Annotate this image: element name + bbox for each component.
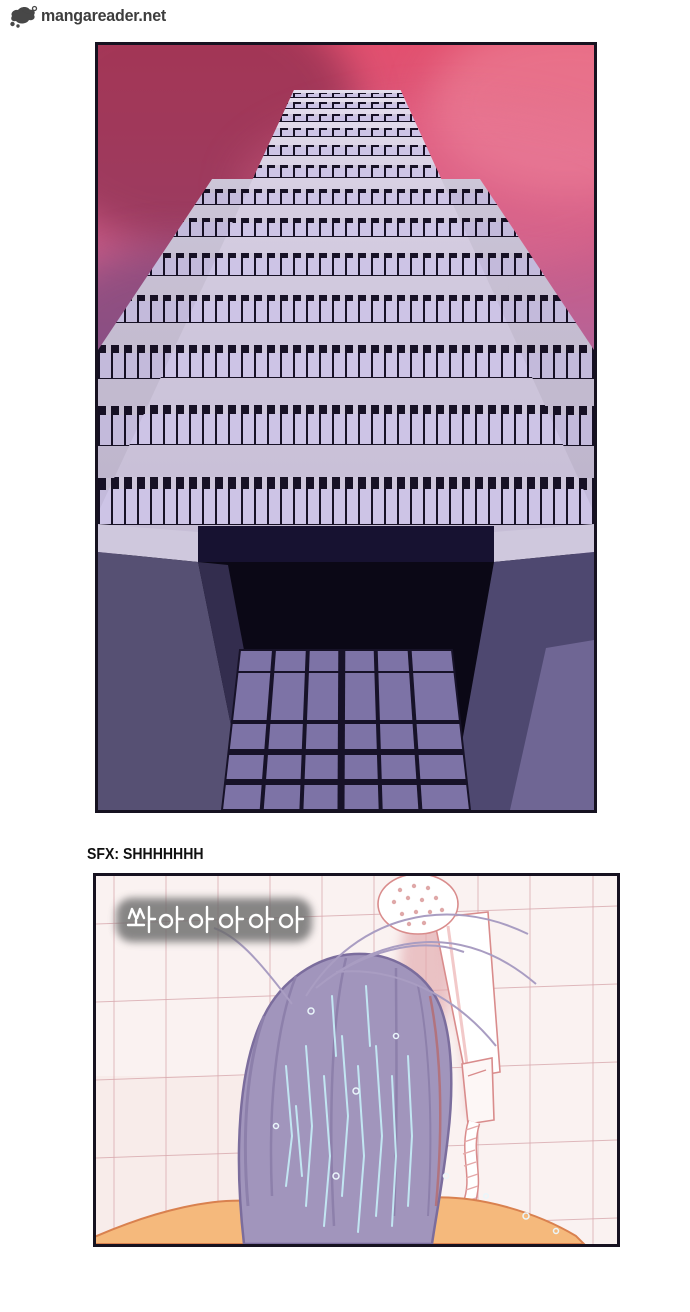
manga-page: mangareader.net bbox=[0, 0, 690, 1312]
panel-skyscraper bbox=[95, 42, 597, 813]
sfx-caption: SFX: SHHHHHHH bbox=[87, 846, 204, 864]
site-logo[interactable]: mangareader.net bbox=[8, 5, 166, 29]
mascot-icon bbox=[8, 5, 38, 29]
building-entrance bbox=[98, 500, 594, 810]
panel-shower: 쏴아아아아아 bbox=[93, 873, 620, 1247]
site-logo-text[interactable]: mangareader.net bbox=[41, 8, 166, 27]
korean-sfx-text: 쏴아아아아아 bbox=[124, 902, 324, 944]
shower-grip bbox=[462, 1058, 494, 1124]
skyscraper-facade bbox=[98, 45, 594, 545]
